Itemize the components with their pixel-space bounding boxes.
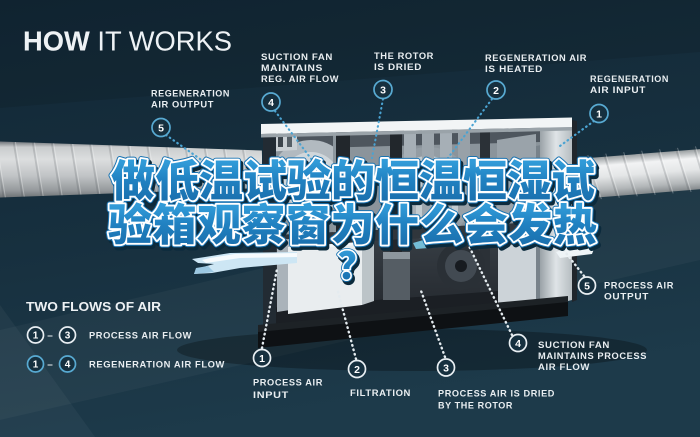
- svg-text:TWO FLOWS OF AIR: TWO FLOWS OF AIR: [26, 300, 161, 314]
- svg-text:–: –: [47, 331, 53, 342]
- svg-text:1: 1: [596, 108, 602, 120]
- svg-text:–: –: [47, 360, 53, 371]
- svg-text:2: 2: [493, 85, 499, 97]
- svg-text:HOW IT WORKS: HOW IT WORKS: [23, 26, 232, 57]
- svg-text:1: 1: [33, 360, 39, 371]
- svg-text:2: 2: [354, 364, 360, 376]
- svg-text:3: 3: [380, 84, 386, 96]
- svg-text:3: 3: [65, 331, 71, 342]
- svg-text:4: 4: [515, 338, 521, 350]
- svg-text:PROCESS AIR FLOW: PROCESS AIR FLOW: [89, 331, 192, 341]
- svg-text:5: 5: [158, 122, 164, 134]
- svg-text:3: 3: [443, 362, 449, 374]
- svg-text:4: 4: [268, 97, 274, 109]
- svg-text:1: 1: [259, 353, 265, 365]
- svg-text:4: 4: [65, 360, 71, 371]
- svg-text:REGENERATION AIR FLOW: REGENERATION AIR FLOW: [89, 360, 225, 370]
- svg-text:FILTRATION: FILTRATION: [350, 388, 411, 398]
- svg-text:1: 1: [33, 331, 39, 342]
- svg-text:5: 5: [584, 280, 590, 292]
